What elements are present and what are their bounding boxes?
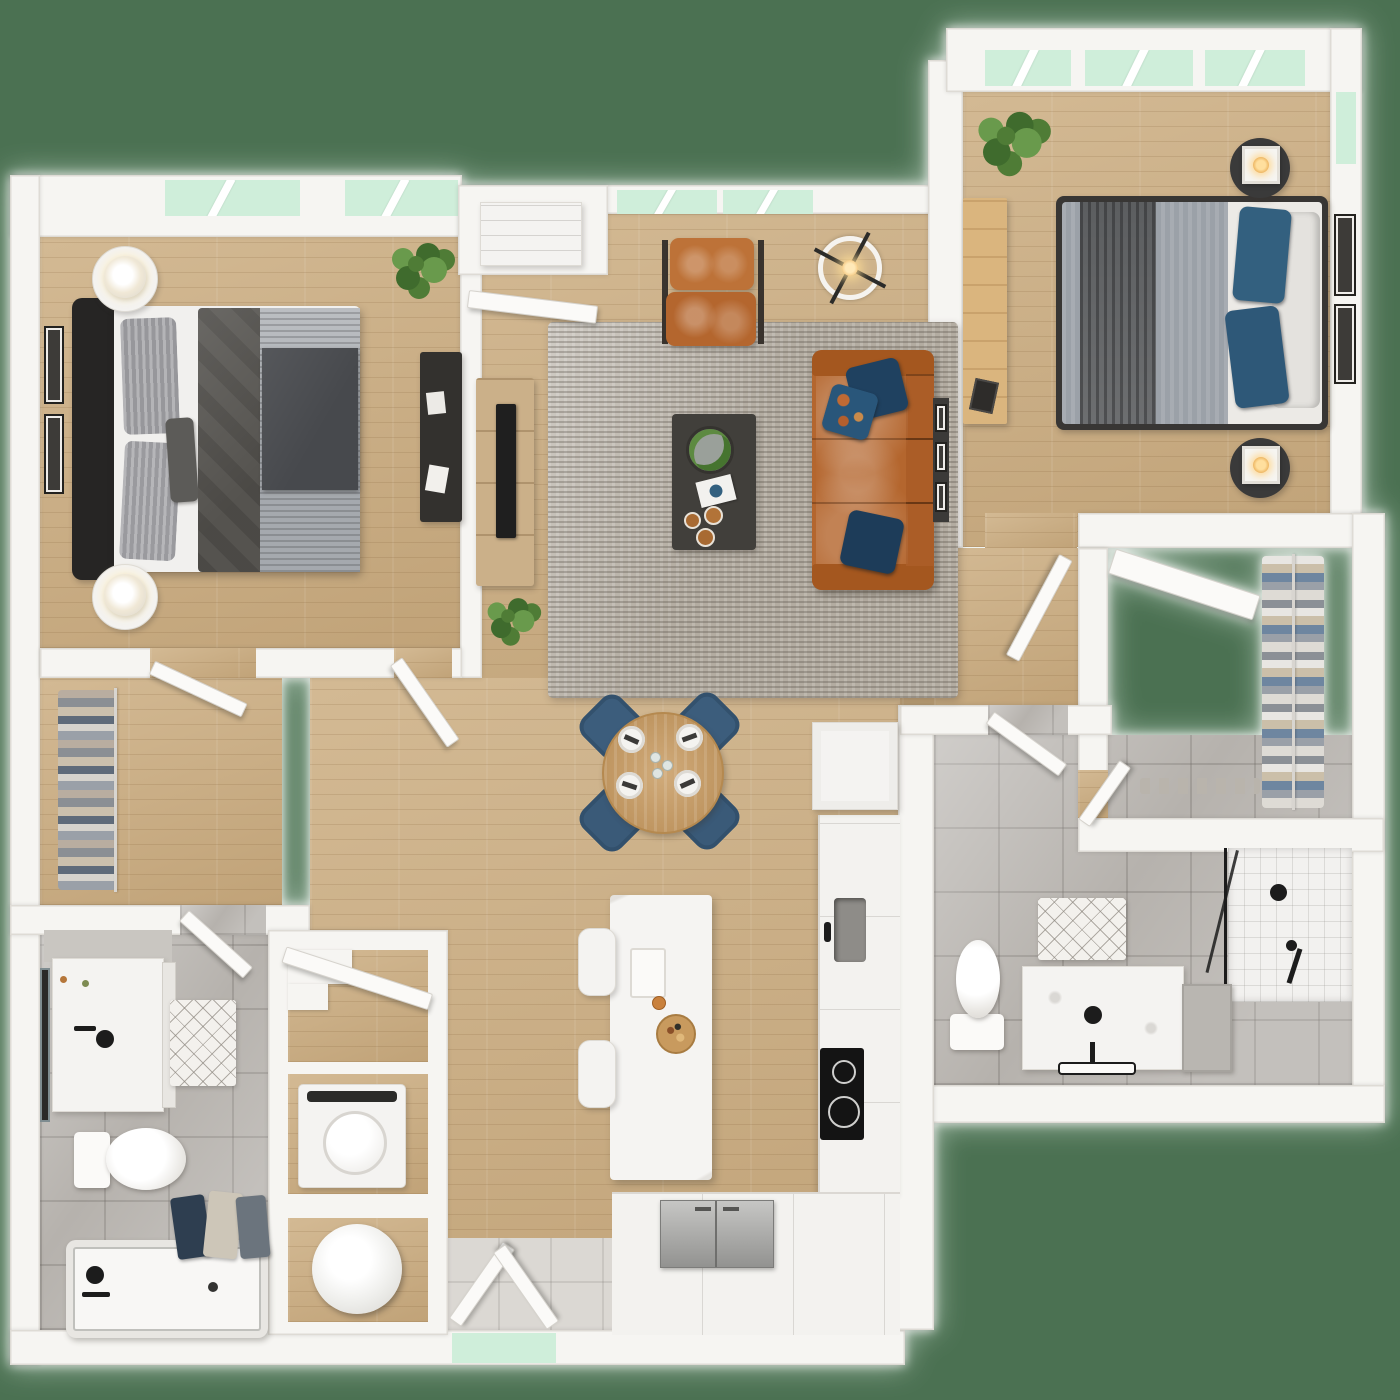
- window-gap: [1336, 92, 1356, 164]
- window-gap: [1085, 50, 1193, 86]
- napkin: [622, 781, 638, 790]
- bed2-pillow-blue: [1232, 206, 1292, 304]
- cooktop: [820, 1048, 864, 1140]
- kitchen-sink: [834, 898, 866, 962]
- sofa-back-shelf: [933, 398, 949, 522]
- closet2-shelf: [1108, 549, 1261, 621]
- toilet1-bowl: [106, 1128, 186, 1190]
- bathroom1-faucet: [74, 1026, 96, 1031]
- shower-head: [1270, 884, 1287, 901]
- bed2-lamp: [1242, 146, 1280, 184]
- sofa-pillow-navy: [839, 509, 905, 575]
- refrigerator: [660, 1200, 774, 1268]
- window-mullion: [1121, 50, 1148, 86]
- washer-lid: [323, 1111, 387, 1175]
- window-mullion: [207, 180, 236, 216]
- floorplan-canvas: [0, 0, 1400, 1400]
- island-tray: [630, 948, 666, 998]
- island-snack: [652, 996, 666, 1010]
- bathroom1-mirror: [40, 968, 50, 1122]
- bed2-lamp: [1242, 446, 1280, 484]
- accent-ottoman: [670, 238, 754, 290]
- apartment-unit: [0, 0, 1400, 1400]
- bed1-lamp: [104, 574, 146, 616]
- shower-control: [1286, 940, 1297, 951]
- bed1-accent-pillow: [165, 417, 199, 503]
- ceiling-fan-light: [818, 236, 882, 300]
- window-mullion: [1237, 50, 1264, 86]
- bathroom2-faucet: [1090, 1042, 1095, 1064]
- toilet2-bowl: [956, 940, 1000, 1018]
- glassware: [662, 760, 673, 771]
- bathroom2-towel-bar: [1058, 1062, 1136, 1075]
- coffee-cup: [696, 528, 715, 547]
- tub-faucet-handle: [86, 1266, 104, 1284]
- wall-closet2-top: [1078, 513, 1384, 548]
- window-mullion: [1011, 50, 1038, 86]
- window-gap: [723, 190, 813, 214]
- vanity-bottle: [60, 976, 67, 983]
- bathroom1-sink: [96, 1030, 114, 1048]
- napkin: [682, 733, 698, 743]
- serving-board: [656, 1014, 696, 1054]
- bathroom2-mat: [1038, 898, 1126, 960]
- water-heater: [312, 1224, 402, 1314]
- coffee-cup: [684, 512, 701, 529]
- place-setting-plate: [676, 724, 703, 751]
- closet2-shoe-row: [1140, 778, 1260, 794]
- laundry-shelf-step: [288, 984, 328, 1010]
- doorway-bedroom2: [985, 513, 1077, 548]
- bed1-desk: [420, 352, 462, 522]
- tub-spout: [82, 1292, 110, 1297]
- accent-chair-frame: [758, 240, 764, 344]
- burner: [828, 1096, 860, 1128]
- window-gap: [617, 190, 717, 214]
- bedroom1-plant: [408, 256, 424, 272]
- napkin: [680, 778, 696, 789]
- shelf-frame: [935, 404, 947, 432]
- window-gap: [1205, 50, 1305, 86]
- wall-left-exterior: [10, 175, 40, 1365]
- island-stool: [578, 1040, 616, 1108]
- desk-papers: [426, 391, 446, 415]
- place-setting-plate: [674, 770, 701, 797]
- wall-bathroom2-bottom: [900, 1085, 1385, 1123]
- place-setting-plate: [616, 772, 643, 799]
- fridge-door-gap: [715, 1201, 717, 1267]
- bathroom2-sink: [1084, 1006, 1102, 1024]
- shelf-frame: [935, 482, 947, 512]
- wall-closet2-right: [1352, 513, 1385, 1120]
- living-plant: [501, 609, 515, 623]
- burner: [832, 1060, 856, 1084]
- bathroom2-vanity: [1022, 966, 1184, 1070]
- shower-glass-panel: [1224, 848, 1227, 998]
- bed2-wall-art: [1334, 214, 1356, 296]
- tv: [496, 404, 516, 538]
- tub-towel: [235, 1195, 270, 1259]
- closet2-rod: [1292, 554, 1295, 810]
- sofa: [812, 350, 934, 590]
- window-gap: [165, 180, 300, 216]
- window-mullion: [755, 190, 778, 214]
- fan-light: [842, 260, 858, 276]
- kitchen-faucet: [824, 922, 831, 942]
- bathtub: [66, 1240, 268, 1338]
- window-mullion: [381, 180, 410, 216]
- entry-closet-cabinet: [480, 202, 582, 266]
- island-stool: [578, 928, 616, 996]
- washing-machine: [298, 1084, 406, 1188]
- toilet1-tank: [74, 1132, 110, 1188]
- window-gap: [985, 50, 1071, 86]
- coffee-cup: [704, 506, 723, 525]
- glassware: [652, 768, 663, 779]
- bed1-throw-blanket: [262, 348, 358, 490]
- tub-drain: [208, 1282, 218, 1292]
- fridge-handle: [723, 1207, 739, 1211]
- bed2-throw-blanket: [1080, 202, 1156, 424]
- window-gap: [345, 180, 458, 216]
- shelf-frame: [935, 442, 947, 472]
- accent-chair: [666, 292, 756, 346]
- bed1-headboard: [72, 298, 118, 580]
- washer-control-panel: [307, 1091, 397, 1102]
- coffee-table-tray: [686, 426, 734, 474]
- wall-kitchen-bath-divider: [898, 705, 934, 1330]
- fridge-handle: [695, 1207, 711, 1211]
- place-setting-plate: [618, 726, 645, 753]
- sofa-back-cushion: [906, 374, 934, 566]
- napkin: [624, 734, 640, 745]
- toilet2-tank: [950, 1014, 1004, 1050]
- closet1-rod: [114, 688, 117, 892]
- bed1-wall-art: [44, 326, 64, 404]
- glassware: [650, 752, 661, 763]
- pantry-cabinet: [812, 722, 898, 810]
- sofa-seam: [812, 438, 934, 440]
- bathroom2-side-cabinet: [1182, 984, 1232, 1072]
- bedroom2-plant: [997, 127, 1015, 145]
- bed2-wall-art: [1334, 304, 1356, 384]
- bathroom1-mat: [170, 1000, 236, 1086]
- entry-doorway-gap: [452, 1333, 556, 1363]
- closet1-hanging-clothes: [58, 690, 116, 890]
- window-mullion: [653, 190, 676, 214]
- wall-closet2-bottom: [1078, 818, 1384, 852]
- vanity-bottle: [82, 980, 89, 987]
- bed1-pillow: [120, 317, 180, 435]
- sofa-seam: [812, 502, 934, 504]
- bed1-lamp: [104, 256, 146, 298]
- bed1-wall-art: [44, 414, 64, 494]
